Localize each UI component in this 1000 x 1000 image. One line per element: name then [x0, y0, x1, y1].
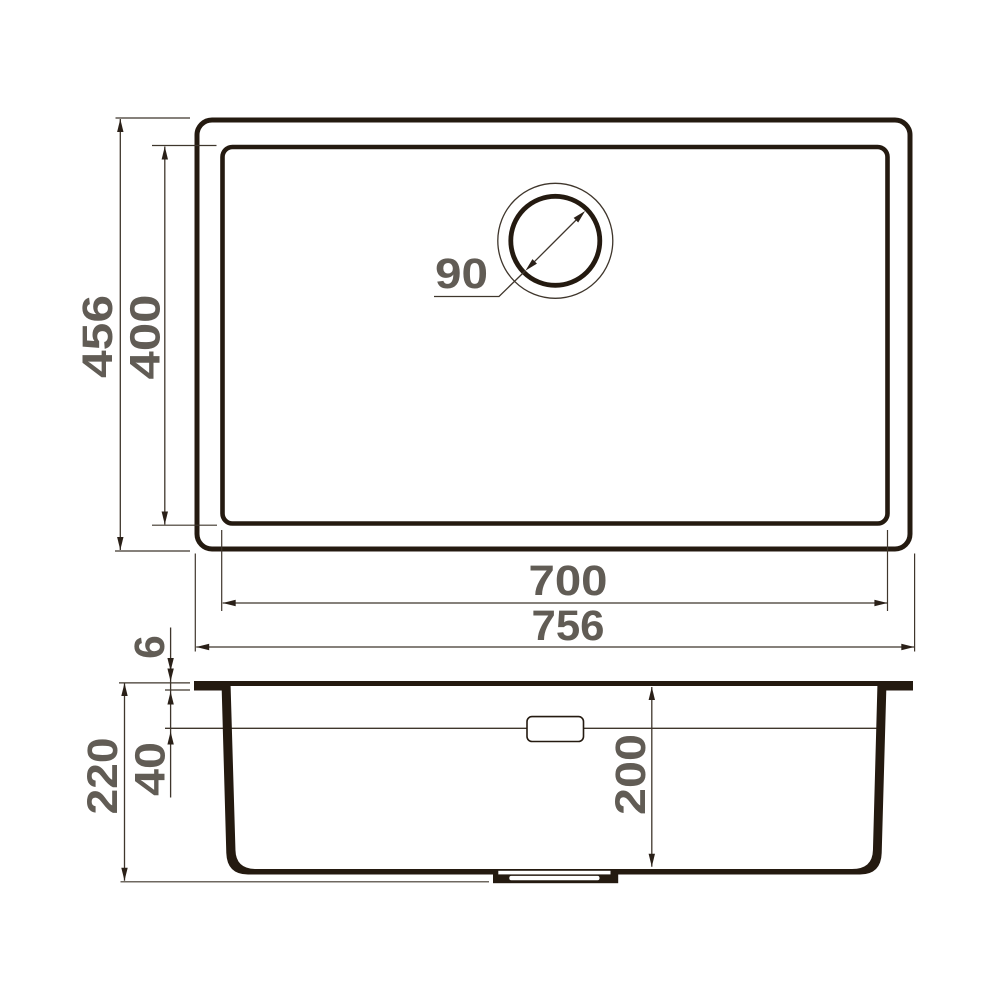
svg-text:200: 200: [608, 734, 655, 815]
svg-text:456: 456: [75, 295, 122, 378]
svg-text:220: 220: [80, 738, 127, 815]
svg-text:40: 40: [128, 742, 175, 796]
svg-text:90: 90: [435, 251, 488, 298]
svg-text:400: 400: [123, 295, 170, 380]
svg-text:756: 756: [532, 603, 605, 650]
svg-text:6: 6: [127, 635, 174, 659]
svg-text:700: 700: [529, 558, 608, 605]
